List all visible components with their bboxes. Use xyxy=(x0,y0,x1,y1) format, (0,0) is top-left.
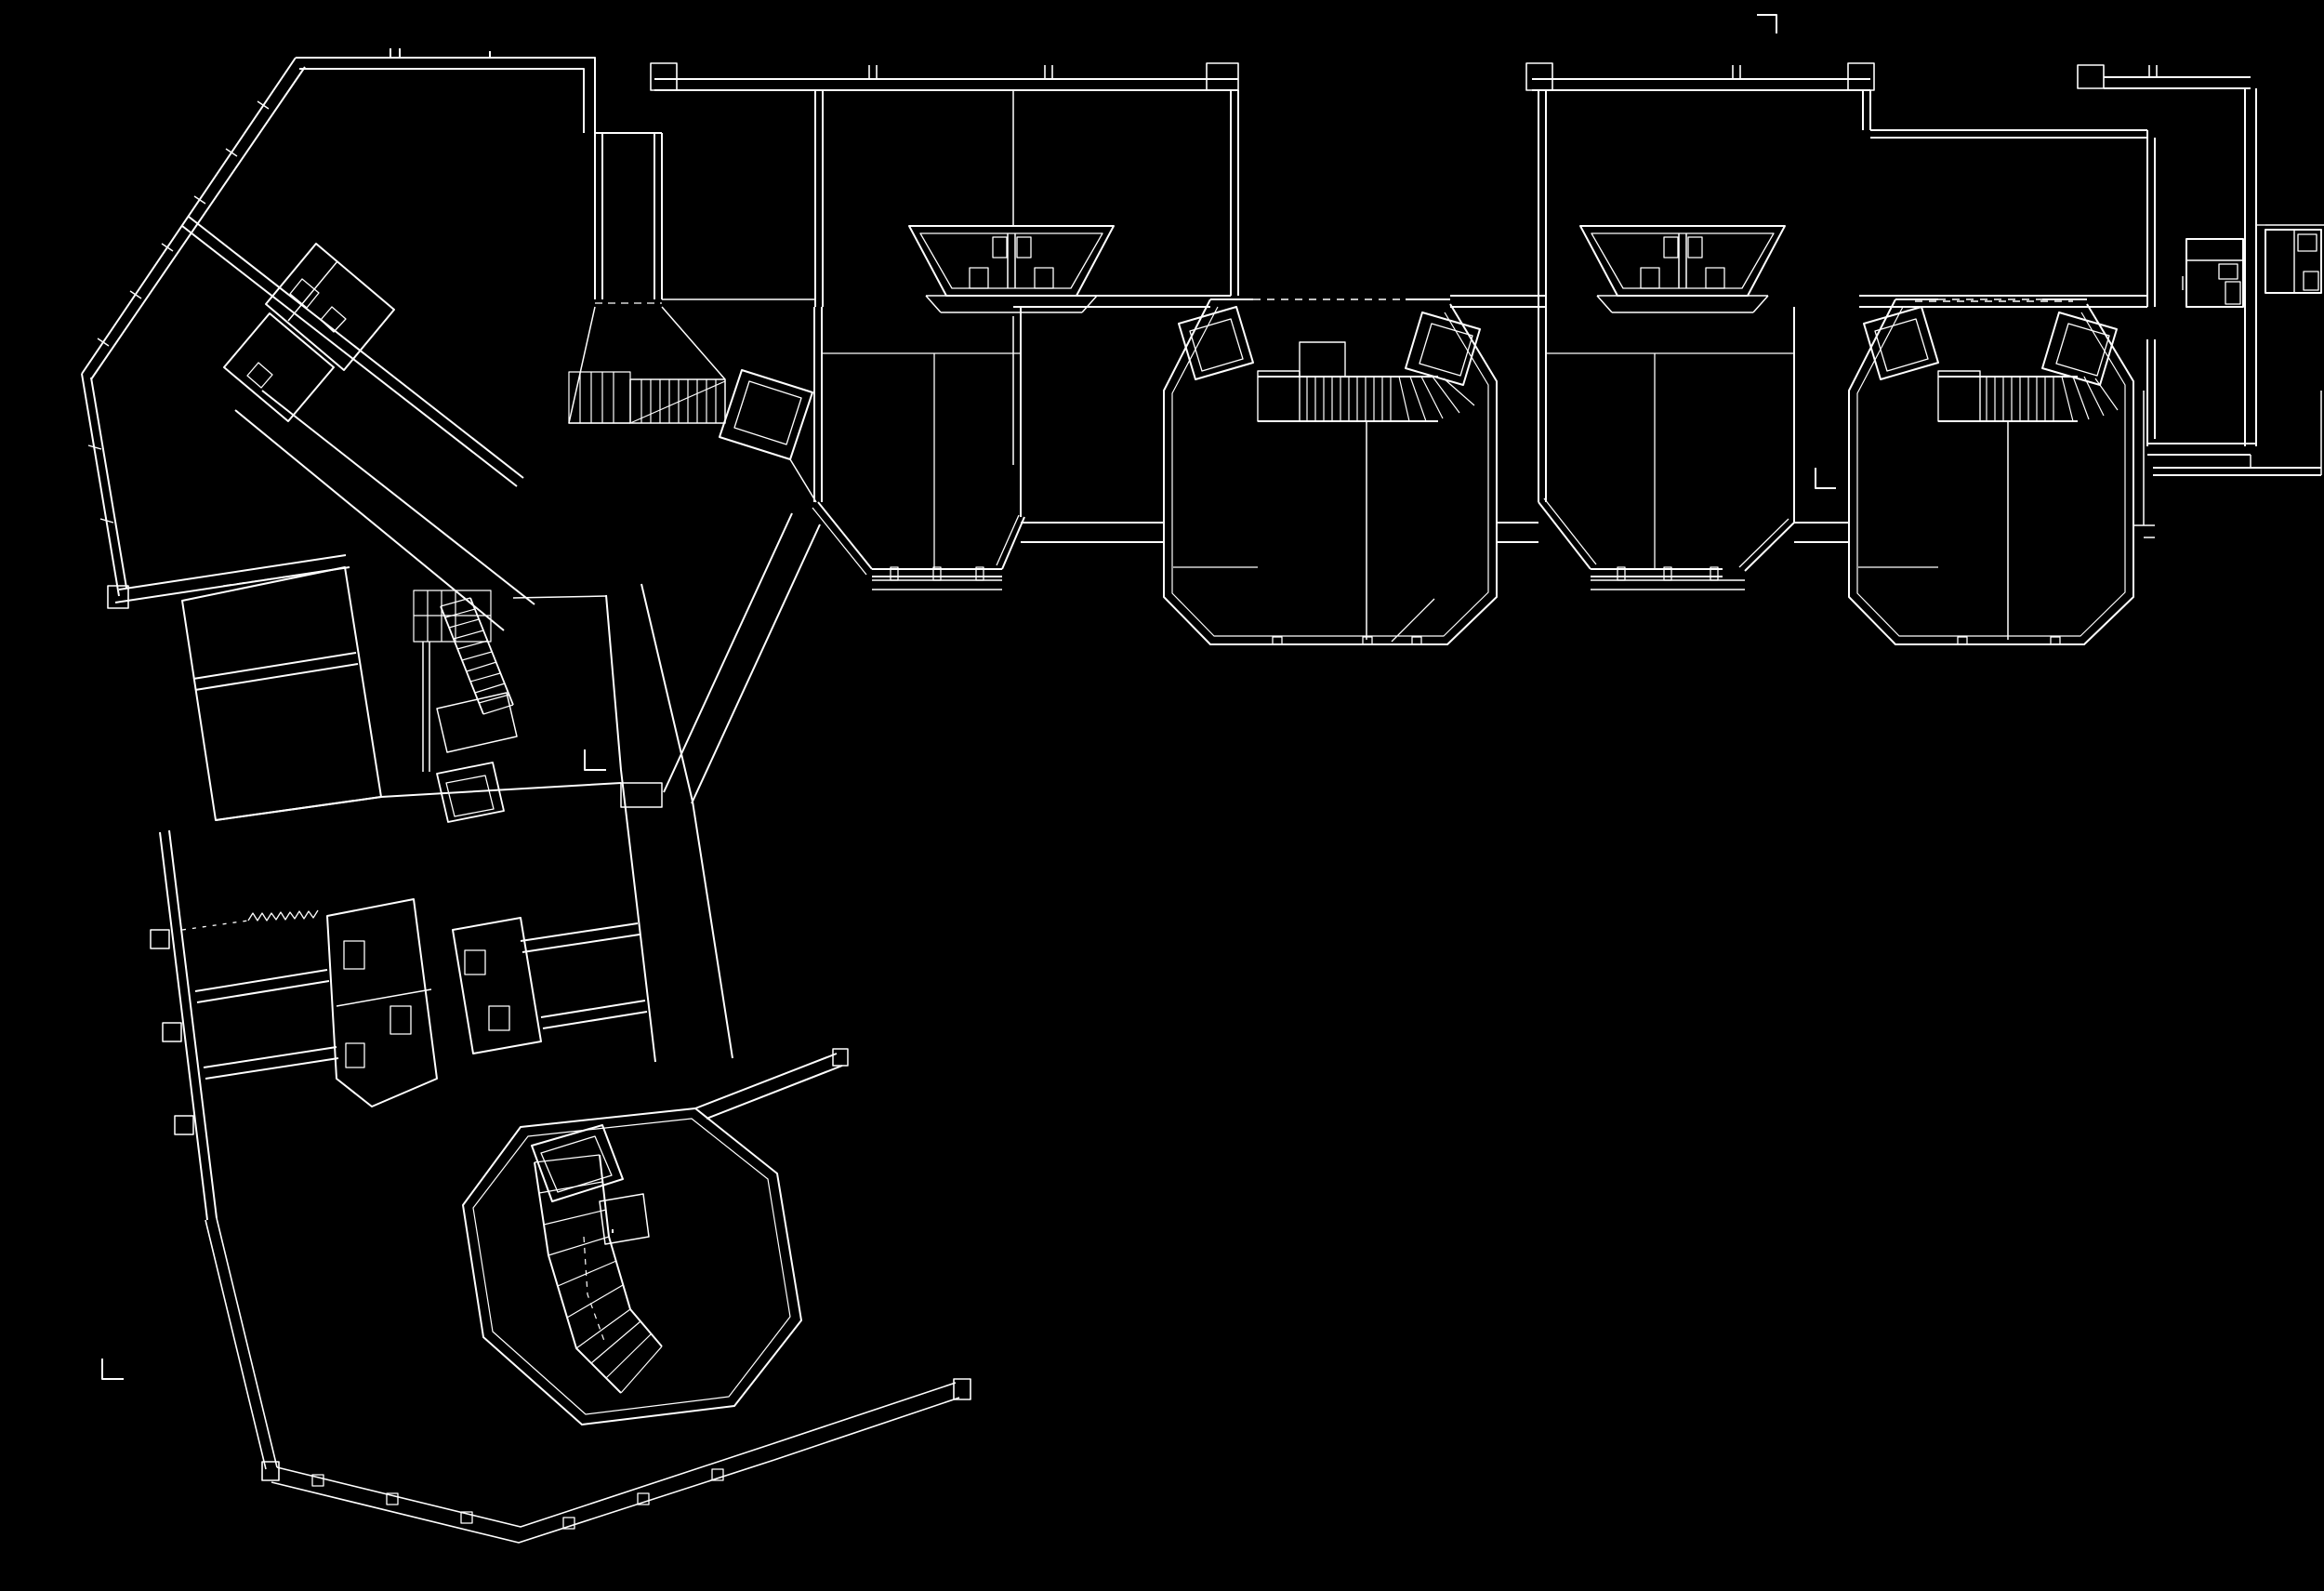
c-stair-treads xyxy=(1307,377,1391,421)
floor-plan-canvas xyxy=(0,0,2324,1591)
llu-left-wall-1 xyxy=(169,830,217,1218)
a-facade-w-outer xyxy=(82,374,119,596)
c-stair-landing xyxy=(1258,371,1300,421)
llu-left-wall-2 xyxy=(160,832,207,1220)
mark-mid-left xyxy=(585,749,606,770)
e-corner-room-tr-fixture xyxy=(2056,324,2109,376)
b-mullion-2 xyxy=(1045,65,1052,79)
ab-pod xyxy=(720,370,812,459)
llu-pod-1-fixture-3 xyxy=(346,1043,364,1067)
e-corridor-right xyxy=(2133,386,2144,525)
e-outline xyxy=(1849,299,2133,644)
balcony-right-rail-1 xyxy=(772,1383,956,1444)
c-outline xyxy=(1164,299,1497,644)
a-corridor-se-2 xyxy=(262,391,535,604)
llu-pillar-3 xyxy=(175,1116,193,1134)
llu-dash-line xyxy=(182,921,248,930)
b-pod-divider xyxy=(1008,233,1015,288)
octagon-ne-rail-1 xyxy=(695,1054,837,1108)
d-octagon-left-wall xyxy=(1538,307,1546,502)
octagon-ne-post xyxy=(833,1049,848,1066)
a-pod-2 xyxy=(224,313,334,421)
cs-wall-left xyxy=(423,642,429,772)
link-d-f-top xyxy=(1870,130,2147,138)
llu-pod-1-divider xyxy=(337,989,431,1006)
module-b xyxy=(651,63,1238,590)
f-left-wall xyxy=(2147,130,2155,446)
balcony-bottom-rail-2 xyxy=(271,1460,774,1543)
b-pod-fixture-3 xyxy=(1035,268,1053,288)
w1-room xyxy=(182,567,381,820)
cs-pod-inner xyxy=(446,776,494,816)
octagon-ne-rail-2 xyxy=(706,1066,842,1119)
a-top-ticks xyxy=(390,48,490,58)
f-lower-band xyxy=(2153,468,2321,475)
bridge-b-c-upper xyxy=(1013,296,1231,307)
a-top-wall-inner xyxy=(299,69,584,133)
d-pod-fixture-2 xyxy=(1664,237,1678,258)
b-balcony-rails xyxy=(872,580,1002,590)
llu-pod-1-fixture-1 xyxy=(344,941,364,969)
bridge-b-c-lower xyxy=(1021,523,1164,542)
d-pod-fixture-3 xyxy=(1706,268,1724,288)
d-octagon-bl-diag xyxy=(1538,502,1591,569)
b-pod-fixture-1 xyxy=(970,268,988,288)
cs-landing xyxy=(437,693,517,752)
mark-top-right xyxy=(1757,15,1776,33)
d-pod-inner xyxy=(1591,233,1774,288)
e-stair-winders xyxy=(2062,377,2118,421)
balconies xyxy=(205,1218,971,1543)
f-room-tr-fixture-2 xyxy=(2304,272,2318,290)
d-pillar-left xyxy=(1526,63,1552,90)
llu-pod-2-fixture-2 xyxy=(489,1006,509,1030)
bridge-d-e-lower xyxy=(1794,523,1849,542)
corridor-ne-wall-1 xyxy=(664,513,792,792)
module-a xyxy=(82,48,595,630)
d-pod-divider xyxy=(1679,233,1686,288)
b-octagon-bottom xyxy=(872,569,1002,577)
f-room-tr-fixture-1 xyxy=(2298,234,2317,251)
c-corner-room-tr-fixture xyxy=(1419,324,1472,376)
llu-pod-1-fixture-2 xyxy=(390,1006,411,1034)
b-pod-inner xyxy=(920,233,1103,288)
a-corridor-se-1 xyxy=(235,410,504,630)
e-corner-room-tl xyxy=(1864,307,1938,379)
ab-wall-left xyxy=(595,133,602,299)
module-f xyxy=(2078,65,2324,475)
llu-pod-2-fixture-1 xyxy=(465,950,485,974)
f-mullion xyxy=(2149,65,2157,77)
w1-divider-1 xyxy=(193,653,356,679)
corridor-junction-block xyxy=(621,783,662,807)
b-right-wall xyxy=(1231,90,1238,296)
f-right-wall xyxy=(2245,88,2256,446)
module-e xyxy=(1849,299,2155,644)
ab-wall-right xyxy=(654,133,662,299)
a-facade-w-inner xyxy=(91,378,126,588)
ab-pod-link-wall xyxy=(790,459,816,502)
b-pod-fixture-4 xyxy=(1017,237,1031,258)
llu-pod-2 xyxy=(453,918,541,1054)
llu-pillar-1 xyxy=(151,930,169,948)
llu-top-wall xyxy=(216,783,621,820)
d-pod-fixture-4 xyxy=(1688,237,1702,258)
octagon-stair-dash xyxy=(584,1237,604,1341)
llu-partition-2-right xyxy=(541,1001,647,1028)
balcony-posts xyxy=(312,1469,723,1529)
llu-pod-1 xyxy=(327,899,437,1107)
a-pod-2-fixture xyxy=(247,363,272,388)
f-bottom-wall xyxy=(2147,444,2256,455)
ab-room-right xyxy=(662,307,725,379)
d-octagon-br-diag-inner xyxy=(1739,519,1789,567)
b-octagon-bl-diag-inner xyxy=(812,508,866,575)
a-partition-1 xyxy=(189,217,523,478)
e-stair-landing xyxy=(1938,371,1980,421)
e-stair-treads xyxy=(1987,377,2053,421)
d-right-wall xyxy=(1863,90,1870,130)
b-pillar-right xyxy=(1207,63,1238,90)
b-octagon-left-wall xyxy=(814,307,822,502)
f-pod-fixture-2 xyxy=(2225,282,2240,304)
link-a-b xyxy=(569,133,816,502)
b-pod-band xyxy=(926,296,1097,312)
balcony-right-rail-2 xyxy=(774,1398,959,1460)
c-bottom-posts xyxy=(1273,637,1421,644)
d-octagon-bl-diag-inner xyxy=(1544,498,1596,564)
c-mid-rect xyxy=(1300,342,1345,377)
d-mullion xyxy=(1733,65,1740,79)
w1-divider-2 xyxy=(195,664,358,690)
f-pod xyxy=(2186,239,2243,307)
f-room-tr xyxy=(2265,230,2321,293)
d-pod-band xyxy=(1597,296,1768,312)
b-octagon-bl-diag xyxy=(818,502,872,569)
balcony-end-post xyxy=(954,1379,971,1399)
d-left-wall xyxy=(1538,90,1546,307)
d-octagon-bottom xyxy=(1591,569,1723,577)
e-f-link xyxy=(2133,525,2155,537)
corridor-left-wall xyxy=(606,595,655,1062)
bottom-octagon xyxy=(463,1049,848,1425)
b-wall-left-room xyxy=(815,90,823,307)
c-corner-room-tl xyxy=(1179,307,1253,379)
d-pillar-right xyxy=(1848,63,1874,90)
c-interior-diag xyxy=(1392,599,1434,642)
d-pod-fixture-1 xyxy=(1641,268,1659,288)
b-pod-outer xyxy=(909,226,1114,296)
module-c xyxy=(1164,296,1546,644)
b-pillar-left xyxy=(651,63,677,90)
llu-partition-2-left xyxy=(204,1047,338,1079)
corridors xyxy=(606,513,820,1062)
bridge-c-d-upper xyxy=(1450,296,1546,307)
ab-pod-inner xyxy=(734,381,801,444)
e-outline-inner xyxy=(1857,307,2125,636)
corridor-ne-wall-2 xyxy=(692,524,820,803)
llu-insulation-zigzag xyxy=(248,910,318,921)
cs-top-link xyxy=(513,596,606,598)
registration-marks xyxy=(102,15,1836,1379)
cs-rail-right xyxy=(470,598,513,705)
b-mullion-1 xyxy=(869,65,877,79)
floor-plan xyxy=(0,0,2324,1591)
llu-partition-1-right xyxy=(521,923,640,952)
a-pod-1-fixture-2 xyxy=(321,307,346,332)
a-pod-1-fixture-1 xyxy=(290,279,319,308)
llu-pillar-2 xyxy=(163,1023,181,1041)
corridor-right-wall xyxy=(641,584,733,1058)
mark-mid-right xyxy=(1816,468,1836,488)
balcony-left-rail-1 xyxy=(217,1218,277,1467)
d-balcony-rails xyxy=(1591,580,1745,590)
e-bottom-posts xyxy=(1958,637,2060,644)
c-outline-inner xyxy=(1172,307,1488,636)
f-pillar-top xyxy=(2078,65,2104,88)
mark-bottom-left xyxy=(102,1359,124,1379)
ab-room-left xyxy=(569,307,630,423)
llu-partition-1-left xyxy=(195,970,329,1002)
b-pod-fixture-2 xyxy=(993,237,1007,258)
f-pod-fixture-1 xyxy=(2219,264,2238,279)
ab-stair-diagonal xyxy=(630,381,725,423)
d-pod-outer xyxy=(1580,226,1785,296)
a-pod-1-divider xyxy=(288,261,337,321)
central-stair xyxy=(414,590,606,822)
balcony-left-rail-2 xyxy=(205,1220,266,1469)
bridge-c-d-lower xyxy=(1497,523,1538,542)
d-octagon-br-diag xyxy=(1745,523,1794,571)
